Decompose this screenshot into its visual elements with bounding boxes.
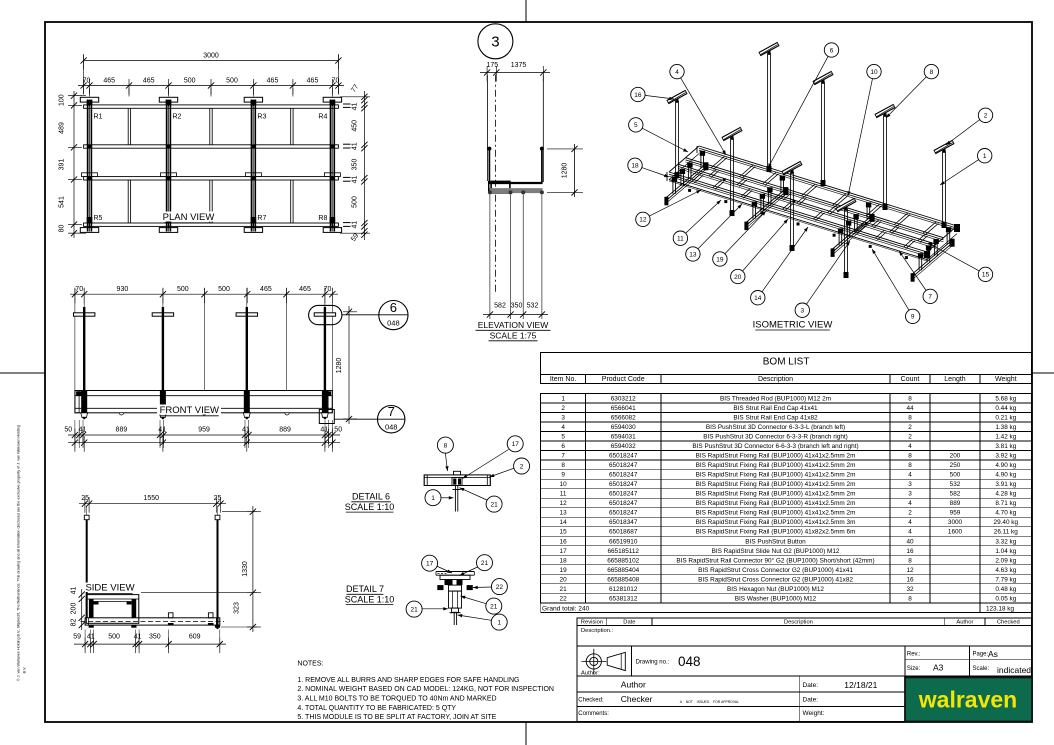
svg-text:4: 4: [908, 519, 912, 526]
svg-text:1: 1: [431, 495, 435, 502]
svg-text:50: 50: [64, 426, 72, 433]
svg-text:65018687: 65018687: [609, 529, 638, 536]
svg-text:21: 21: [490, 603, 498, 610]
svg-text:BOM LIST: BOM LIST: [763, 357, 810, 368]
svg-text:1.42 kg: 1.42 kg: [995, 434, 1016, 441]
svg-text:15: 15: [982, 272, 990, 279]
svg-text:1280: 1280: [562, 163, 569, 179]
svg-text:0.05 kg: 0.05 kg: [995, 595, 1016, 602]
svg-text:889: 889: [116, 426, 128, 433]
svg-text:26.11 kg: 26.11 kg: [994, 529, 1018, 536]
svg-text:Count: Count: [901, 376, 920, 383]
svg-text:Date:: Date:: [803, 682, 819, 689]
svg-text:959: 959: [950, 510, 961, 517]
svg-text:175: 175: [486, 62, 498, 69]
svg-text:11: 11: [677, 236, 684, 243]
svg-text:Author:: Author:: [581, 670, 600, 676]
svg-text:25: 25: [81, 495, 89, 502]
svg-text:44: 44: [906, 405, 914, 412]
svg-text:4.90 kg: 4.90 kg: [995, 472, 1016, 479]
svg-text:3000: 3000: [203, 53, 219, 60]
svg-text:Checked:: Checked:: [578, 697, 604, 703]
svg-text:R5: R5: [94, 215, 103, 222]
svg-text:Scale:: Scale:: [973, 666, 990, 672]
svg-text:walraven: walraven: [918, 687, 1017, 713]
svg-text:465: 465: [307, 78, 319, 85]
svg-text:3. ALL M10 BOLTS TO BE TORQUED: 3. ALL M10 BOLTS TO BE TORQUED TO 40Nm A…: [297, 696, 496, 703]
svg-text:532: 532: [527, 303, 539, 310]
svg-text:NOTES:: NOTES:: [297, 661, 323, 668]
svg-text:16: 16: [906, 548, 914, 555]
svg-text:R4: R4: [318, 114, 327, 121]
svg-text:4.90 kg: 4.90 kg: [995, 462, 1016, 469]
svg-text:6566082: 6566082: [611, 415, 636, 422]
svg-text:4: 4: [908, 500, 912, 507]
svg-text:59: 59: [73, 633, 81, 640]
svg-text:Size:: Size:: [907, 666, 921, 672]
svg-text:17: 17: [426, 561, 434, 568]
svg-text:8: 8: [561, 462, 565, 469]
svg-text:BIS RapidStrut Rail Connector: BIS RapidStrut Rail Connector 90° G2 (BU…: [676, 556, 874, 564]
svg-text:3: 3: [491, 34, 499, 51]
svg-text:465: 465: [260, 286, 272, 293]
svg-text:10: 10: [870, 69, 878, 76]
svg-text:2: 2: [908, 510, 912, 517]
svg-text:BIS RapidStrut Cross Connector: BIS RapidStrut Cross Connector G2 (BUP10…: [698, 576, 853, 583]
svg-text:80: 80: [59, 225, 66, 233]
svg-text:22: 22: [560, 595, 568, 602]
svg-text:R2: R2: [173, 114, 182, 121]
svg-text:PLAN VIEW: PLAN VIEW: [163, 212, 215, 223]
svg-text:5.68 kg: 5.68 kg: [995, 396, 1016, 403]
svg-text:Revision: Revision: [581, 620, 603, 626]
svg-text:BIS RapidStrut Cross Connector: BIS RapidStrut Cross Connector G2 (BUP10…: [698, 567, 853, 574]
svg-text:13: 13: [560, 510, 568, 517]
svg-text:Length: Length: [944, 376, 966, 383]
svg-text:200: 200: [71, 603, 78, 615]
svg-text:8: 8: [930, 69, 934, 76]
svg-text:350: 350: [352, 159, 359, 171]
svg-text:Rev.:: Rev.:: [907, 652, 921, 658]
svg-text:BIS RapidStrut Fixing Rail (BU: BIS RapidStrut Fixing Rail (BUP1000) 41x…: [696, 510, 856, 517]
svg-text:2: 2: [908, 424, 912, 431]
svg-text:FRONT VIEW: FRONT VIEW: [160, 405, 219, 416]
svg-text:32: 32: [906, 586, 914, 593]
svg-text:4.63 kg: 4.63 kg: [995, 567, 1016, 574]
svg-text:6594031: 6594031: [611, 434, 636, 441]
svg-text:450: 450: [352, 120, 359, 132]
svg-text:100: 100: [59, 94, 66, 106]
svg-text:40: 40: [906, 538, 914, 545]
svg-text:16: 16: [560, 538, 568, 545]
svg-text:R3: R3: [257, 114, 266, 121]
svg-text:25: 25: [214, 495, 222, 502]
svg-text:15: 15: [560, 529, 568, 536]
svg-text:Description: Description: [784, 620, 813, 626]
svg-text:ELEVATION VIEW: ELEVATION VIEW: [478, 320, 549, 330]
svg-text:3.32 kg: 3.32 kg: [995, 538, 1016, 545]
svg-text:DETAIL 6: DETAIL 6: [352, 492, 390, 502]
svg-text:3.81 kg: 3.81 kg: [995, 443, 1016, 450]
svg-text:1. REMOVE ALL BURRS AND SHARP: 1. REMOVE ALL BURRS AND SHARP EDGES FOR …: [297, 677, 519, 684]
svg-text:65018247: 65018247: [609, 491, 638, 498]
svg-text:609: 609: [189, 633, 201, 640]
svg-text:1280: 1280: [336, 358, 343, 374]
svg-text:9: 9: [561, 472, 565, 479]
svg-text:R8: R8: [318, 215, 327, 222]
svg-text:Weight:: Weight:: [803, 710, 825, 717]
svg-text:70: 70: [75, 286, 83, 293]
svg-text:465: 465: [103, 78, 115, 85]
svg-text:3: 3: [561, 415, 565, 422]
svg-text:BIS RapidStrut Fixing Rail (BU: BIS RapidStrut Fixing Rail (BUP1000) 41x…: [696, 462, 856, 469]
svg-text:BIS RapidStrut Fixing Rail (BU: BIS RapidStrut Fixing Rail (BUP1000) 41x…: [696, 529, 856, 536]
svg-text:889: 889: [279, 426, 291, 433]
svg-text:Comments:: Comments:: [578, 711, 609, 717]
svg-text:Description: Description: [758, 376, 793, 383]
svg-text:1375: 1375: [511, 62, 527, 69]
svg-text:8: 8: [908, 557, 912, 564]
svg-text:582: 582: [950, 491, 961, 498]
svg-text:6: 6: [390, 300, 397, 315]
svg-text:65018247: 65018247: [609, 510, 638, 517]
svg-text:323: 323: [234, 602, 241, 614]
svg-text:048: 048: [678, 654, 701, 669]
svg-text:500: 500: [218, 286, 230, 293]
svg-text:8: 8: [908, 595, 912, 602]
svg-text:532: 532: [950, 481, 961, 488]
svg-text:959: 959: [198, 426, 210, 433]
svg-text:41: 41: [320, 426, 328, 433]
svg-text:70: 70: [83, 78, 91, 85]
svg-text:18: 18: [560, 557, 568, 564]
svg-text:2.09 kg: 2.09 kg: [995, 557, 1016, 564]
svg-text:16: 16: [906, 576, 914, 583]
svg-text:BIS RapidStrut Slide Nut G2 (B: BIS RapidStrut Slide Nut G2 (BUP1000) M1…: [712, 548, 840, 555]
svg-text:Drawing no.:: Drawing no.:: [636, 660, 670, 666]
svg-text:R7: R7: [257, 215, 266, 222]
svg-text:665885102: 665885102: [607, 557, 639, 564]
svg-text:16: 16: [634, 92, 642, 99]
svg-text:Checked: Checked: [997, 620, 1020, 626]
svg-text:65381312: 65381312: [609, 595, 638, 602]
svg-text:7.79 kg: 7.79 kg: [995, 576, 1016, 583]
svg-text:Weight: Weight: [995, 376, 1017, 383]
svg-text:541: 541: [59, 196, 66, 208]
svg-text:A3: A3: [933, 663, 944, 673]
svg-text:5: 5: [634, 122, 638, 129]
svg-text:© J. van Walraven Holding B.V.: © J. van Walraven Holding B.V., Mijdrech…: [17, 425, 21, 681]
svg-text:14: 14: [754, 295, 762, 302]
svg-text:65018247: 65018247: [609, 500, 638, 507]
svg-text:Item No.: Item No.: [550, 376, 577, 383]
svg-text:5: 5: [561, 434, 565, 441]
svg-text:500: 500: [108, 633, 120, 640]
svg-text:1: 1: [983, 153, 987, 160]
svg-text:19: 19: [560, 567, 568, 574]
svg-text:2: 2: [561, 405, 565, 412]
svg-text:41: 41: [352, 176, 359, 184]
svg-text:1: 1: [561, 396, 565, 403]
svg-text:4: 4: [561, 424, 565, 431]
svg-text:Checker: Checker: [621, 694, 653, 704]
svg-text:As: As: [988, 649, 998, 659]
svg-text:BIS RapidStrut Fixing Rail (BU: BIS RapidStrut Fixing Rail (BUP1000) 41x…: [696, 491, 856, 498]
svg-text:6303212: 6303212: [611, 396, 636, 403]
svg-text:8.71 kg: 8.71 kg: [995, 500, 1016, 507]
svg-text:2: 2: [520, 463, 524, 470]
svg-text:Author: Author: [621, 680, 646, 690]
svg-text:41: 41: [352, 142, 359, 150]
svg-text:70: 70: [332, 78, 340, 85]
svg-text:1550: 1550: [144, 495, 160, 502]
svg-text:0.21 kg: 0.21 kg: [995, 415, 1016, 422]
svg-text:048: 048: [387, 319, 400, 328]
svg-text:7: 7: [388, 404, 395, 419]
svg-text:indicated: indicated: [997, 665, 1031, 675]
svg-text:7: 7: [928, 294, 932, 301]
svg-text:350: 350: [149, 633, 161, 640]
svg-text:12: 12: [639, 217, 647, 224]
svg-text:11: 11: [560, 491, 567, 498]
svg-text:BIS RapidStrut Fixing Rail (BU: BIS RapidStrut Fixing Rail (BUP1000) 41x…: [696, 519, 856, 526]
svg-text:13: 13: [689, 251, 697, 258]
svg-text:3: 3: [908, 481, 912, 488]
svg-text:BIS RapidStrut Fixing Rail (BU: BIS RapidStrut Fixing Rail (BUP1000) 41x…: [696, 472, 856, 479]
svg-text:BIS PushStrut 3D Connector 6-3: BIS PushStrut 3D Connector 6-3-3-R (bran…: [703, 434, 848, 441]
svg-text:4: 4: [908, 529, 912, 536]
svg-text:1330: 1330: [242, 561, 249, 577]
svg-text:4.70 kg: 4.70 kg: [995, 510, 1016, 517]
svg-text:50: 50: [334, 426, 342, 433]
svg-text:12: 12: [560, 500, 568, 507]
svg-text:14: 14: [560, 519, 568, 526]
svg-text:Page:: Page:: [973, 652, 989, 658]
svg-text:17: 17: [560, 548, 568, 555]
svg-text:8: 8: [908, 396, 912, 403]
svg-text:Author: Author: [956, 620, 973, 626]
svg-text:41: 41: [158, 426, 166, 433]
svg-text:5. THIS MODULE IS TO BE SPLIT: 5. THIS MODULE IS TO BE SPLIT AT FACTORY…: [297, 714, 496, 721]
svg-text:41: 41: [352, 103, 359, 111]
svg-text:DETAIL 7: DETAIL 7: [346, 584, 384, 594]
svg-text:65018247: 65018247: [609, 481, 638, 488]
svg-text:7: 7: [561, 453, 565, 460]
svg-text:8: 8: [908, 453, 912, 460]
svg-text:41: 41: [352, 221, 359, 229]
svg-text:6594032: 6594032: [611, 443, 636, 450]
svg-text:65018347: 65018347: [609, 519, 638, 526]
svg-text:4: 4: [908, 472, 912, 479]
svg-text:500: 500: [352, 196, 359, 208]
svg-text:BIS Strut Rail End Cap 41x82: BIS Strut Rail End Cap 41x82: [733, 415, 818, 422]
svg-text:21: 21: [490, 501, 498, 508]
svg-text:ISOMETRIC VIEW: ISOMETRIC VIEW: [753, 320, 833, 331]
svg-text:10: 10: [560, 481, 568, 488]
svg-text:8: 8: [444, 442, 448, 449]
svg-text:21: 21: [410, 606, 418, 613]
svg-text:2: 2: [908, 434, 912, 441]
svg-text:2: 2: [984, 113, 988, 120]
svg-text:465: 465: [299, 286, 311, 293]
svg-text:582: 582: [494, 303, 506, 310]
svg-text:41: 41: [79, 426, 87, 433]
svg-text:465: 465: [267, 78, 279, 85]
svg-text:Description.:: Description.:: [581, 628, 614, 634]
svg-text:3: 3: [908, 491, 912, 498]
svg-text:6: 6: [830, 47, 834, 54]
svg-text:9: 9: [911, 314, 915, 321]
svg-text:4. TOTAL QUANTITY TO BE FABRIC: 4. TOTAL QUANTITY TO BE FABRICATED: 5 QT…: [297, 705, 456, 712]
svg-text:8: 8: [908, 415, 912, 422]
svg-text:4: 4: [675, 69, 679, 76]
svg-text:65018247: 65018247: [609, 462, 638, 469]
svg-text:BIS RapidStrut Fixing Rail (BU: BIS RapidStrut Fixing Rail (BUP1000) 41x…: [696, 481, 856, 488]
svg-text:12/18/21: 12/18/21: [844, 680, 877, 690]
svg-text:29.40 kg: 29.40 kg: [994, 519, 1019, 526]
svg-text:1: 1: [497, 619, 501, 626]
svg-text:66519910: 66519910: [609, 538, 638, 545]
svg-text:391: 391: [59, 159, 66, 171]
svg-text:BIS Hexagon Nut (BUP1000) M12: BIS Hexagon Nut (BUP1000) M12: [727, 586, 824, 593]
svg-text:930: 930: [117, 286, 129, 293]
svg-text:R1: R1: [94, 114, 103, 121]
svg-text:18: 18: [631, 163, 639, 170]
svg-text:048: 048: [385, 423, 398, 432]
svg-text:465: 465: [143, 78, 155, 85]
svg-text:4: 4: [908, 443, 912, 450]
svg-text:Date:: Date:: [803, 696, 819, 703]
svg-text:500: 500: [950, 472, 961, 479]
svg-text:Grand total: 240: Grand total: 240: [542, 606, 590, 613]
svg-text:SIDE VIEW: SIDE VIEW: [85, 583, 134, 594]
svg-text:20: 20: [734, 274, 742, 281]
svg-text:BIS PushStrut Button: BIS PushStrut Button: [745, 538, 806, 545]
svg-text:250: 250: [950, 462, 961, 469]
svg-text:665185112: 665185112: [607, 548, 639, 555]
svg-text:BIS PushStrut 3D Connector 6-6: BIS PushStrut 3D Connector 6-6-3-3 (bran…: [692, 443, 858, 450]
svg-text:21: 21: [560, 586, 568, 593]
svg-text:65018247: 65018247: [609, 453, 638, 460]
svg-text:BIS Strut Rail End Cap 41x41: BIS Strut Rail End Cap 41x41: [733, 405, 818, 412]
svg-text:12: 12: [906, 567, 914, 574]
svg-text:500: 500: [226, 78, 238, 85]
svg-text:21: 21: [481, 560, 489, 567]
svg-text:3.91 kg: 3.91 kg: [995, 481, 1016, 488]
svg-text:BIS PushStrut 3D Connector 6-3: BIS PushStrut 3D Connector 6-3-3-L (bran…: [706, 424, 845, 431]
svg-text:41: 41: [87, 633, 95, 640]
svg-text:0.44 kg: 0.44 kg: [995, 405, 1016, 412]
svg-text:SCALE 1:10: SCALE 1:10: [345, 502, 395, 512]
svg-text:123.18 kg: 123.18 kg: [986, 606, 1015, 613]
svg-text:BIS Washer (BUP1000) M12: BIS Washer (BUP1000) M12: [735, 595, 817, 602]
svg-text:489: 489: [59, 122, 66, 134]
svg-text:665885404: 665885404: [607, 567, 639, 574]
svg-text:3000: 3000: [948, 519, 963, 526]
svg-text:350: 350: [511, 303, 523, 310]
svg-text:4.28 kg: 4.28 kg: [995, 491, 1016, 498]
svg-text:1.38 kg: 1.38 kg: [995, 424, 1016, 431]
svg-text:500: 500: [177, 286, 189, 293]
svg-text:A NOT ISSUED FOR APPR: A NOT ISSUED FOR APPROVAL: [680, 700, 739, 704]
svg-text:Date: Date: [623, 620, 635, 626]
svg-text:61281012: 61281012: [609, 586, 638, 593]
svg-text:200: 200: [950, 453, 961, 460]
svg-text:65018247: 65018247: [609, 472, 638, 479]
svg-text:2. NOMINAL WEIGHT BASED ON CAD: 2. NOMINAL WEIGHT BASED ON CAD MODEL: 12…: [297, 686, 554, 693]
svg-text:41: 41: [71, 587, 78, 595]
svg-text:6: 6: [561, 443, 565, 450]
svg-text:SCALE 1:10: SCALE 1:10: [345, 594, 395, 604]
svg-text:665885408: 665885408: [607, 576, 639, 583]
svg-text:20: 20: [560, 576, 568, 583]
svg-text:17: 17: [512, 441, 520, 448]
svg-text:0.48 kg: 0.48 kg: [995, 586, 1016, 593]
svg-text:3: 3: [800, 308, 804, 315]
svg-text:B.V.: B.V.: [23, 667, 27, 674]
svg-text:1600: 1600: [948, 529, 963, 536]
svg-text:1.04 kg: 1.04 kg: [995, 548, 1016, 555]
svg-text:BIS Threaded Rod (BUP1000) M12: BIS Threaded Rod (BUP1000) M12 2m: [720, 396, 831, 403]
svg-text:6594030: 6594030: [611, 424, 636, 431]
svg-text:19: 19: [716, 256, 724, 263]
svg-text:3.92 kg: 3.92 kg: [995, 453, 1016, 460]
svg-text:22: 22: [496, 584, 504, 591]
svg-text:500: 500: [184, 78, 196, 85]
svg-text:Product Code: Product Code: [602, 376, 645, 383]
svg-text:BIS RapidStrut Fixing Rail (BU: BIS RapidStrut Fixing Rail (BUP1000) 41x…: [696, 453, 856, 460]
svg-text:41: 41: [134, 633, 142, 640]
svg-text:8: 8: [908, 462, 912, 469]
svg-text:SCALE 1:75: SCALE 1:75: [490, 331, 537, 341]
svg-text:6566041: 6566041: [611, 405, 636, 412]
svg-text:BIS RapidStrut Fixing Rail (BU: BIS RapidStrut Fixing Rail (BUP1000) 41x…: [696, 500, 856, 507]
svg-text:889: 889: [950, 500, 961, 507]
svg-text:82: 82: [71, 619, 78, 627]
